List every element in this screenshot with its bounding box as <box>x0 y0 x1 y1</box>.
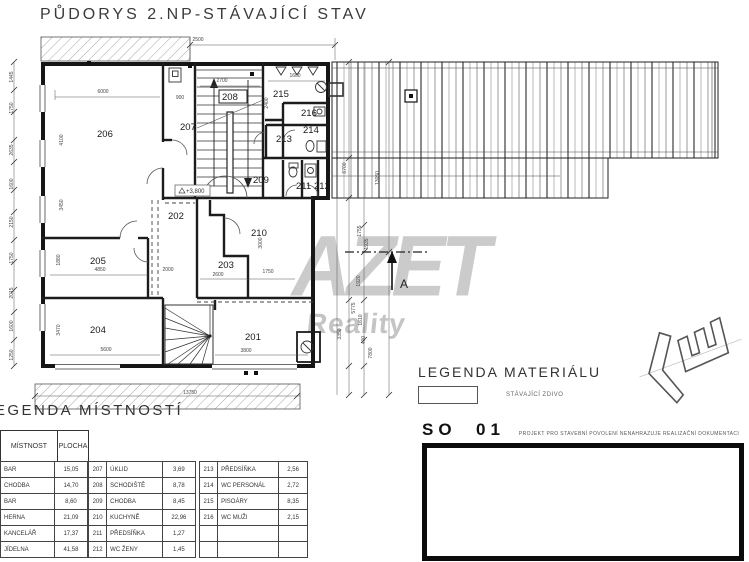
cell-val: 2,72 <box>279 478 308 494</box>
cell-num <box>200 542 218 558</box>
material-swatch <box>418 386 478 404</box>
cell-nm: WC PERSONÁL <box>218 478 279 494</box>
roof-area <box>332 62 718 198</box>
hatch-bands <box>35 37 300 409</box>
room-number-label: 213 <box>276 134 292 145</box>
dimension-label: 13050 <box>375 171 381 185</box>
table-row: 215PISOÁRY8,35 <box>200 494 308 510</box>
room-number-label: 214 <box>303 125 319 136</box>
cell-nm: PISOÁRY <box>218 494 279 510</box>
cell-nm: PŘEDSÍŇKA <box>107 526 163 542</box>
title-block: SO 01 PROJEKT PRO STAVEBNÍ POVOLENÍ NENA… <box>422 420 744 561</box>
table-row: BAR15,05 <box>1 462 88 478</box>
cell-val: 15,05 <box>54 462 87 478</box>
table-row: JÍDELNA41,58 <box>1 542 88 558</box>
dimension-label: 7800 <box>368 347 374 358</box>
dimension-label: 1750 <box>9 102 15 113</box>
dimension-label: 1935 <box>364 238 370 249</box>
dimension-label: 3470 <box>56 324 62 335</box>
room-number-label: 205 <box>90 256 106 267</box>
cell-val: 14,70 <box>54 478 87 494</box>
wc-212-icon <box>305 164 316 177</box>
title-block-frame <box>422 443 744 561</box>
dimension-label: 3000 <box>258 237 264 248</box>
cell-num: 212 <box>89 542 107 558</box>
cell-num: 207 <box>89 462 107 478</box>
dimension-label: 1600 <box>9 178 15 189</box>
room-number-label: 201 <box>245 332 261 343</box>
dimension-label: 3450 <box>59 199 65 210</box>
header-mistnost: MÍSTNOST <box>1 431 58 461</box>
dimension-label: 400 <box>361 336 367 345</box>
cell-val: 41,58 <box>54 542 87 558</box>
cell-num: 211 <box>89 526 107 542</box>
dimension-label: 2600 <box>212 272 223 278</box>
dimension-label: 1600 <box>289 73 300 79</box>
cell-nm: PŘEDSÍŇKA <box>218 462 279 478</box>
level-marker: +3,800 <box>175 185 210 196</box>
wc-211-icon <box>289 167 297 177</box>
table-row <box>200 542 308 558</box>
cell-num: 209 <box>89 494 107 510</box>
dimension-label: 2635 <box>9 144 15 155</box>
room-number-label: 212 <box>314 181 330 192</box>
cell-num: 215 <box>200 494 218 510</box>
cell-nm <box>218 526 279 542</box>
table-row: HERNA21,09 <box>1 510 88 526</box>
cell-num: 216 <box>200 510 218 526</box>
dimension-label: 1880 <box>56 254 62 265</box>
dimension-label: 6700 <box>342 162 348 173</box>
dimension-label: 3800 <box>240 348 251 354</box>
table-row: 210KUCHYNĚ22,96 <box>89 510 196 526</box>
table-row: 214WC PERSONÁL2,72 <box>200 478 308 494</box>
table-row: 209CHODBA8,45 <box>89 494 196 510</box>
cell-nm <box>218 542 279 558</box>
chimney-icon <box>405 90 417 102</box>
cell-val: 8,35 <box>279 494 308 510</box>
room-number-label: 202 <box>168 211 184 222</box>
table-row: BAR8,60 <box>1 494 88 510</box>
dimension-label: 5600 <box>100 347 111 353</box>
room-number-label: 209 <box>253 175 269 186</box>
cell-val: 22,96 <box>162 510 195 526</box>
room-number-label: 207 <box>180 122 196 133</box>
cell-val <box>279 526 308 542</box>
room-number-label: 211 <box>296 181 311 192</box>
dimension-label: 5775 <box>351 302 357 313</box>
legend-rooms-table-3: 213PŘEDSÍŇKA2,56214WC PERSONÁL2,72215PIS… <box>199 461 308 558</box>
dimension-label: 2400 <box>264 97 270 108</box>
utility-box-icon <box>169 68 181 82</box>
dimension-label: 2700 <box>216 78 227 84</box>
dimension-label: 1250 <box>9 349 15 360</box>
outer-walls <box>41 62 330 368</box>
cell-val: 17,37 <box>54 526 87 542</box>
dimension-label: 6000 <box>97 89 108 95</box>
room-number-label: 208 <box>222 92 238 103</box>
legend-rooms-table-2: 207ÚKLID3,69208SCHODIŠTĚ8,78209CHODBA8,4… <box>88 461 196 558</box>
dimension-label: 1600 <box>9 320 15 331</box>
section-marker-label: A <box>400 277 408 291</box>
header-plocha: PLOCHA <box>58 431 88 461</box>
cell-nm: BAR <box>1 462 55 478</box>
room-number-label: 203 <box>218 260 234 271</box>
room-number-label: 210 <box>251 228 267 239</box>
cell-nm: WC ŽENY <box>107 542 163 558</box>
table-row: 216WC MUŽI2,15 <box>200 510 308 526</box>
room-number-label: 216 <box>301 108 317 119</box>
dimension-label: 1750 <box>9 252 15 263</box>
dimension-label: 1755 <box>357 225 363 236</box>
cell-nm: BAR <box>1 494 55 510</box>
dimension-label: 3350 <box>337 328 343 339</box>
table-row: KANCELÁŘ17,37 <box>1 526 88 542</box>
cell-num <box>200 526 218 542</box>
table-row: 207ÚKLID3,69 <box>89 462 196 478</box>
logo-mark <box>633 308 749 412</box>
material-swatch-label: STÁVAJÍCÍ ZDIVO <box>506 392 563 398</box>
dimension-label: 2500 <box>192 37 203 43</box>
drawing-sheet: AZET Reality PŮDORYS 2.NP-STÁVAJÍCÍ STAV <box>0 0 749 562</box>
cell-nm: ÚKLID <box>107 462 163 478</box>
dimension-label: 1920 <box>356 275 362 286</box>
table-row: 213PŘEDSÍŇKA2,56 <box>200 462 308 478</box>
room-number-label: 206 <box>97 129 113 140</box>
legend-rooms-title: LEGENDA MÍSTNOSTÍ <box>0 402 183 419</box>
legend-material-title: LEGENDA MATERIÁLU <box>418 364 601 380</box>
cell-nm: KANCELÁŘ <box>1 526 55 542</box>
object-code: SO 01 <box>422 420 505 440</box>
cell-nm: HERNA <box>1 510 55 526</box>
cell-nm: JÍDELNA <box>1 542 55 558</box>
legend-rooms-table-1: BAR15,05CHODBA14,70BAR8,60HERNA21,09KANC… <box>0 461 88 558</box>
dimension-label: 4100 <box>59 134 65 145</box>
cell-nm: KUCHYNĚ <box>107 510 163 526</box>
dimension-label: 2000 <box>162 267 173 273</box>
cell-val: 8,60 <box>54 494 87 510</box>
cell-val: 1,27 <box>162 526 195 542</box>
cell-val: 2,56 <box>279 462 308 478</box>
dimension-label: 4850 <box>94 267 105 273</box>
cell-nm: CHODBA <box>107 494 163 510</box>
cell-val: 8,78 <box>162 478 195 494</box>
table-row: 212WC ŽENY1,45 <box>89 542 196 558</box>
cell-nm: CHODBA <box>1 478 55 494</box>
cell-num: 208 <box>89 478 107 494</box>
dimension-label: 900 <box>176 95 185 101</box>
dimension-label: 1445 <box>9 71 15 82</box>
wc-214-icon <box>317 141 326 152</box>
room-number-label: 215 <box>273 89 289 100</box>
table-row: 208SCHODIŠTĚ8,78 <box>89 478 196 494</box>
cell-num: 210 <box>89 510 107 526</box>
staircase-winder <box>165 305 213 364</box>
legend-rooms-header: MÍSTNOST PLOCHA <box>0 430 89 462</box>
cell-val: 3,69 <box>162 462 195 478</box>
legend-material: LEGENDA MATERIÁLU STÁVAJÍCÍ ZDIVO <box>418 364 601 404</box>
cell-num: 214 <box>200 478 218 494</box>
object-note: PROJEKT PRO STAVEBNÍ POVOLENÍ NENAHRAZUJ… <box>519 431 739 437</box>
table-row: CHODBA14,70 <box>1 478 88 494</box>
cell-val: 8,45 <box>162 494 195 510</box>
cell-nm: SCHODIŠTĚ <box>107 478 163 494</box>
dimension-label: 2015 <box>9 287 15 298</box>
dimension-label: 2150 <box>9 216 15 227</box>
cell-val: 1,45 <box>162 542 195 558</box>
dimension-label: 1610 <box>358 314 364 325</box>
dimension-label: 1750 <box>262 269 273 275</box>
cell-nm: WC MUŽI <box>218 510 279 526</box>
cell-val: 2,15 <box>279 510 308 526</box>
cell-val: 21,09 <box>54 510 87 526</box>
table-row: 211PŘEDSÍŇKA1,27 <box>89 526 196 542</box>
room-number-label: 204 <box>90 325 106 336</box>
table-row <box>200 526 308 542</box>
cell-num: 213 <box>200 462 218 478</box>
cell-val <box>279 542 308 558</box>
level-label: +3,800 <box>186 189 205 195</box>
dimension-label: 13750 <box>183 390 197 396</box>
